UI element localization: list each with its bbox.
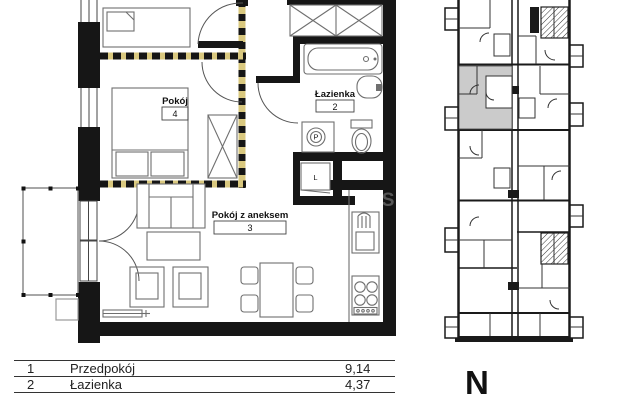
balcony — [22, 187, 81, 321]
closet-box: L — [301, 163, 330, 193]
sofa — [137, 184, 205, 228]
closet-label: L — [313, 173, 317, 182]
dining-table — [241, 263, 313, 317]
room-area-table: 1 Przedpokój 9,14 2 Łazienka 4,37 — [14, 360, 395, 393]
room4-name: Pokój — [162, 96, 188, 107]
room4-number: 4 — [172, 109, 177, 119]
washing-machine: P — [302, 122, 334, 152]
kitchen-sink — [352, 212, 379, 253]
building-bottom-wall — [455, 336, 573, 342]
living-number: 3 — [247, 223, 252, 233]
north-indicator: N — [465, 364, 489, 400]
exterior-unit — [56, 299, 78, 320]
staircase — [530, 7, 568, 38]
table-cell-room-name: Przedpokój — [70, 361, 345, 376]
bathroom-name: Łazienka — [315, 89, 356, 100]
table-cell-number: 2 — [14, 377, 70, 392]
washbasin — [357, 76, 382, 98]
wardrobe — [208, 115, 237, 178]
dining-chair — [296, 267, 313, 284]
stove — [352, 276, 379, 315]
armchair — [173, 267, 208, 307]
table-cell-room-name: Łazienka — [70, 377, 345, 392]
dining-chair — [296, 295, 313, 312]
dining-chair — [241, 267, 258, 284]
staircase — [541, 233, 568, 264]
armchair — [130, 267, 164, 307]
toilet — [351, 120, 372, 153]
washer-label: P — [313, 133, 318, 142]
window — [76, 0, 102, 22]
dining-chair — [241, 295, 258, 312]
table-cell-area: 4,37 — [345, 377, 395, 392]
table-cell-number: 1 — [14, 361, 70, 376]
watermark: RS — [366, 190, 396, 211]
living-name: Pokój z aneksem — [212, 210, 289, 221]
highlighted-unit — [459, 66, 512, 129]
floorplan-canvas: P L — [0, 0, 620, 400]
bathtub — [304, 44, 382, 74]
doors — [198, 3, 300, 123]
building-overview: N — [445, 0, 583, 400]
table-cell-area: 9,14 — [345, 361, 395, 376]
coffee-table — [147, 232, 200, 260]
radiator — [103, 310, 150, 317]
apartment-plan: P L — [22, 0, 397, 343]
hall-wardrobe — [290, 5, 382, 36]
table-row: 1 Przedpokój 9,14 — [14, 361, 395, 377]
floorplan-image: P L — [0, 0, 620, 400]
bathroom-number: 2 — [332, 102, 337, 112]
table-row: 2 Łazienka 4,37 — [14, 377, 395, 393]
window — [76, 88, 102, 127]
single-bed — [103, 8, 190, 47]
